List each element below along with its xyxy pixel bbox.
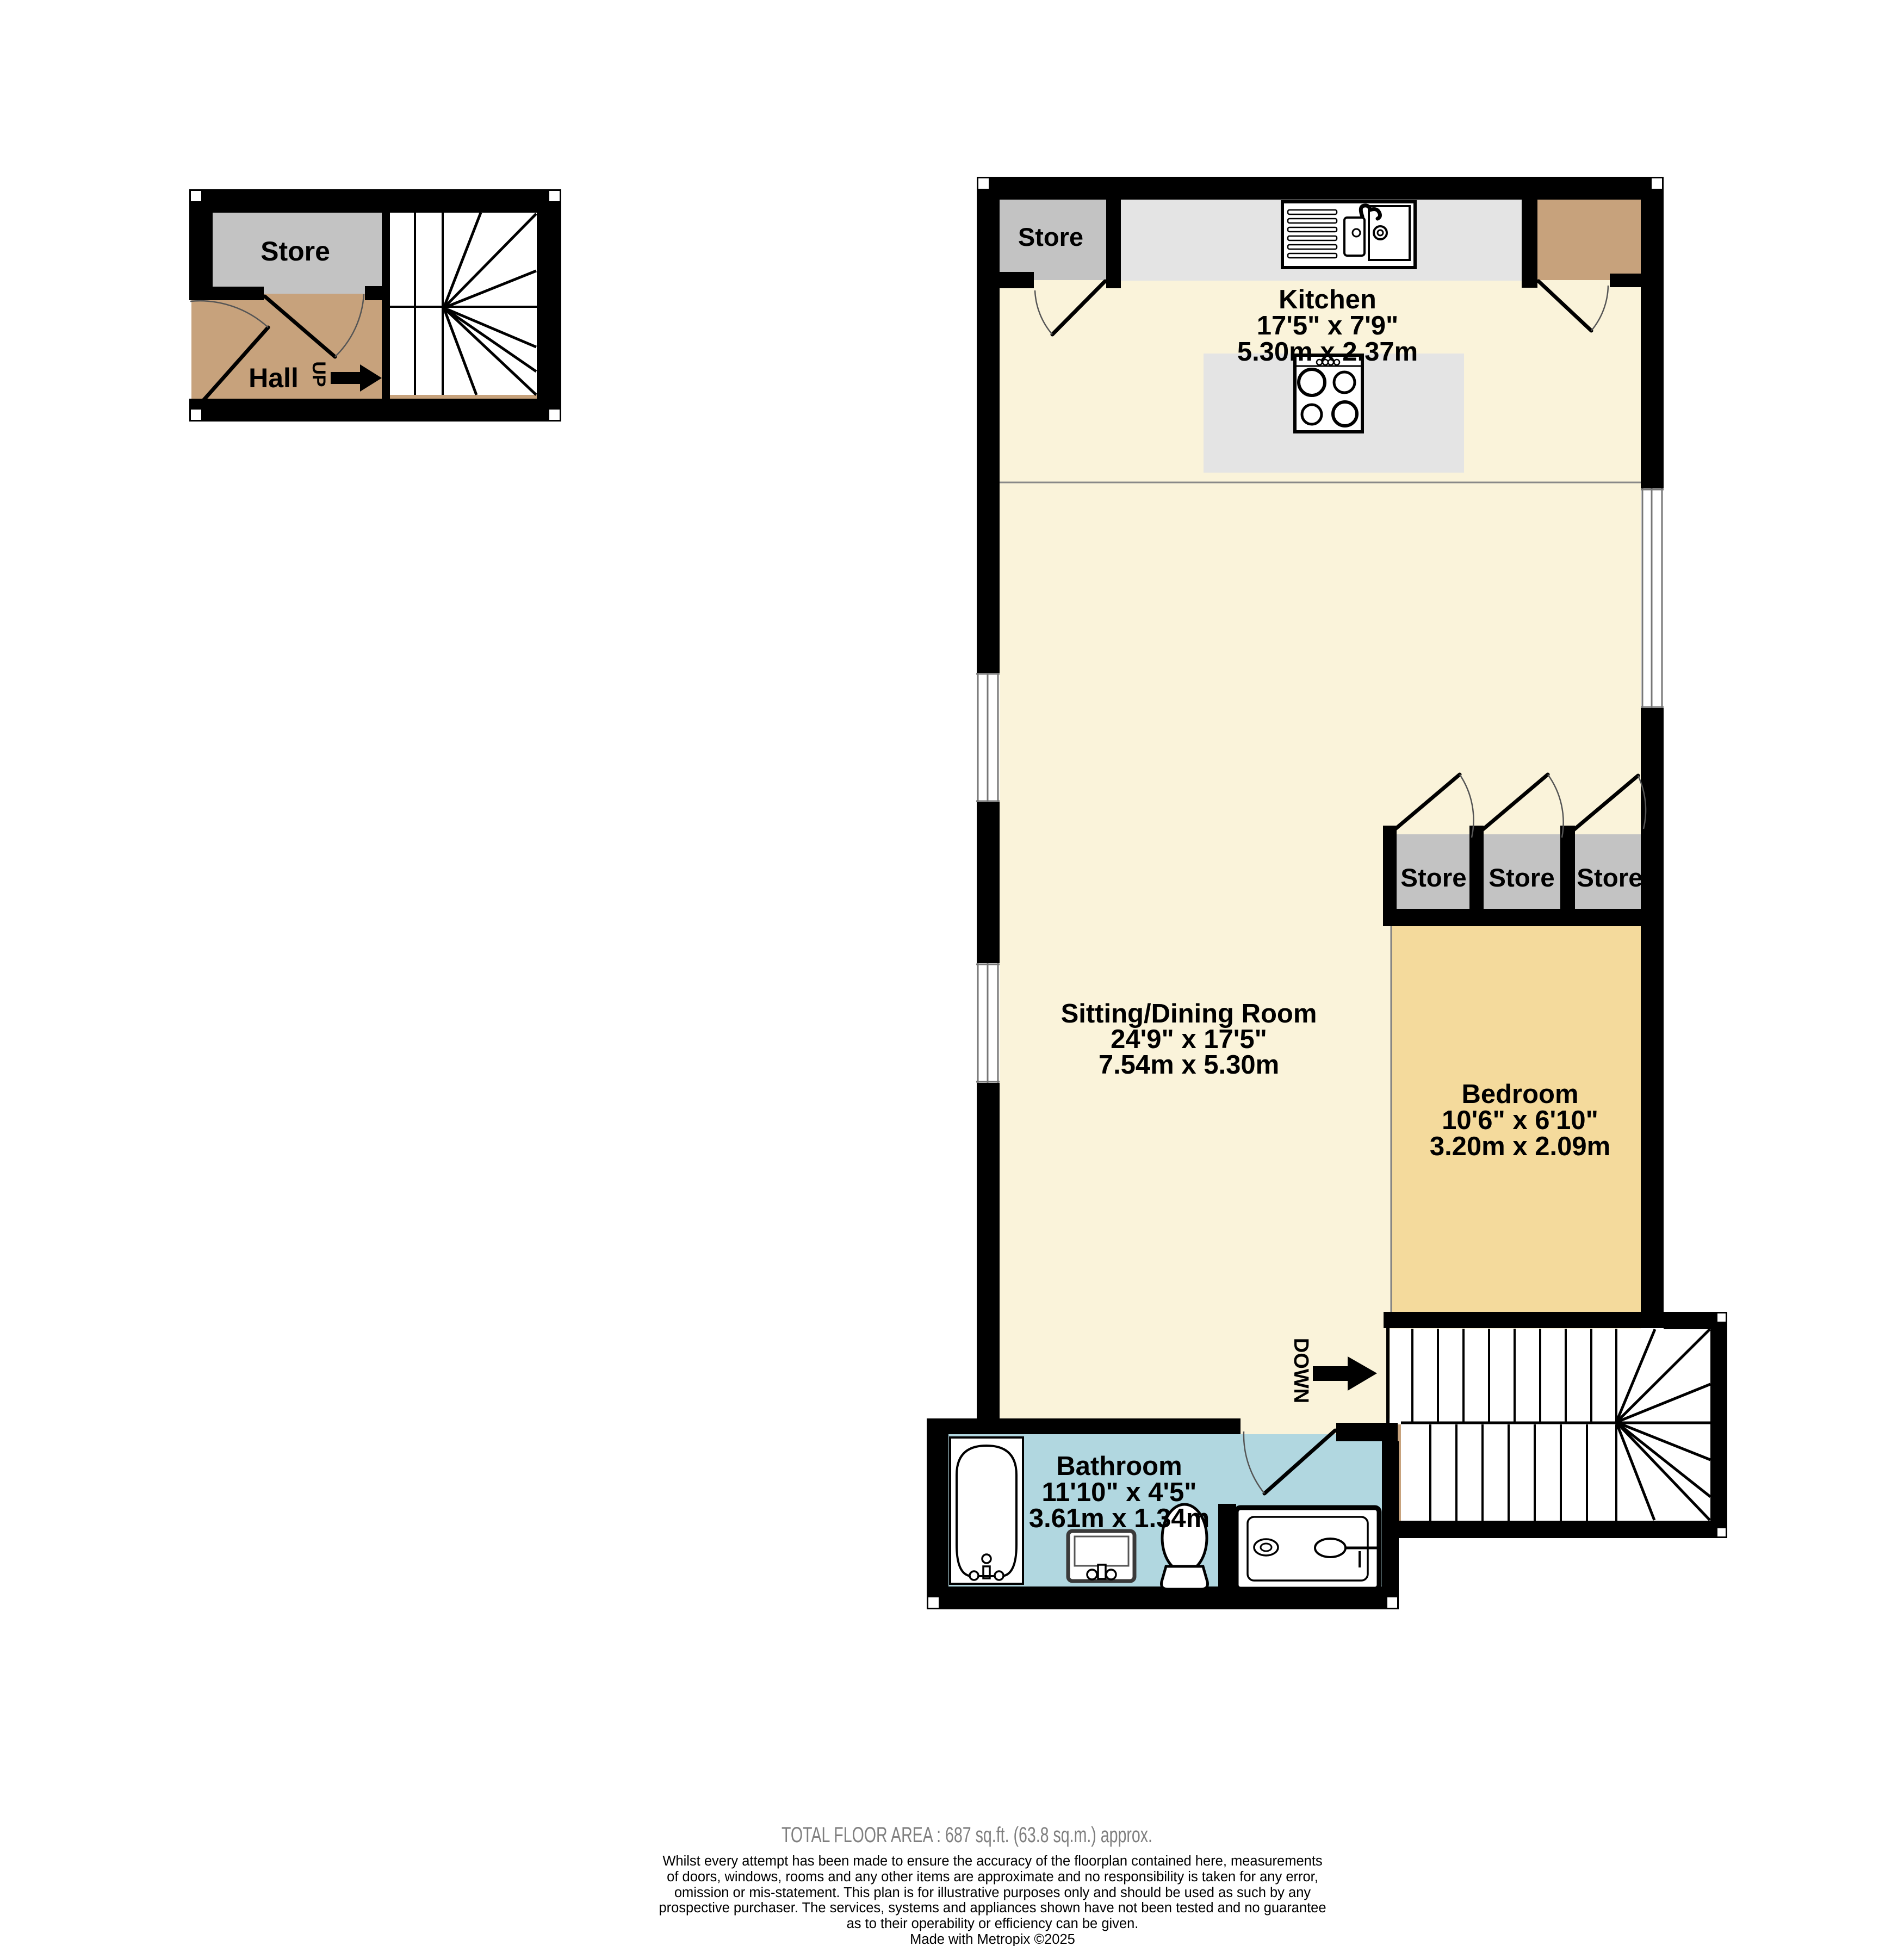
svg-text:Bedroom: Bedroom bbox=[1461, 1080, 1578, 1109]
svg-text:17'5" x 7'9": 17'5" x 7'9" bbox=[1257, 311, 1399, 340]
svg-text:Whilst every attempt has been: Whilst every attempt has been made to en… bbox=[662, 1854, 1322, 1869]
svg-text:11'10" x 4'5": 11'10" x 4'5" bbox=[1041, 1478, 1196, 1507]
svg-text:of doors, windows, rooms and a: of doors, windows, rooms and any other i… bbox=[667, 1869, 1318, 1885]
svg-text:DOWN: DOWN bbox=[1289, 1338, 1312, 1403]
svg-text:3.20m x 2.09m: 3.20m x 2.09m bbox=[1430, 1132, 1610, 1161]
svg-text:Store: Store bbox=[1577, 864, 1642, 893]
svg-text:Store: Store bbox=[1489, 864, 1554, 893]
svg-text:UP: UP bbox=[308, 361, 329, 387]
svg-text:Bathroom: Bathroom bbox=[1056, 1452, 1182, 1481]
svg-text:Hall: Hall bbox=[249, 363, 299, 393]
svg-text:Store: Store bbox=[1018, 222, 1083, 251]
svg-text:24'9" x 17'5": 24'9" x 17'5" bbox=[1111, 1025, 1267, 1054]
svg-text:Store: Store bbox=[261, 236, 330, 267]
svg-text:Store: Store bbox=[1400, 864, 1466, 893]
svg-text:5.30m x 2.37m: 5.30m x 2.37m bbox=[1237, 337, 1418, 367]
svg-text:3.61m x 1.34m: 3.61m x 1.34m bbox=[1029, 1504, 1210, 1533]
svg-text:prospective purchaser. The ser: prospective purchaser. The services, sys… bbox=[659, 1900, 1326, 1916]
svg-text:Sitting/Dining Room: Sitting/Dining Room bbox=[1061, 999, 1317, 1028]
svg-text:TOTAL FLOOR AREA : 687 sq.ft.: TOTAL FLOOR AREA : 687 sq.ft. (63.8 sq.m… bbox=[782, 1823, 1152, 1847]
svg-text:10'6" x 6'10": 10'6" x 6'10" bbox=[1442, 1106, 1598, 1135]
svg-text:Kitchen: Kitchen bbox=[1279, 285, 1376, 314]
svg-text:Made with Metropix ©2025: Made with Metropix ©2025 bbox=[910, 1932, 1075, 1946]
svg-text:omission or mis-statement. Thi: omission or mis-statement. This plan is … bbox=[674, 1885, 1311, 1900]
svg-text:7.54m x 5.30m: 7.54m x 5.30m bbox=[1099, 1050, 1279, 1080]
svg-text:as to their operability or eff: as to their operability or efficiency ca… bbox=[847, 1916, 1139, 1931]
